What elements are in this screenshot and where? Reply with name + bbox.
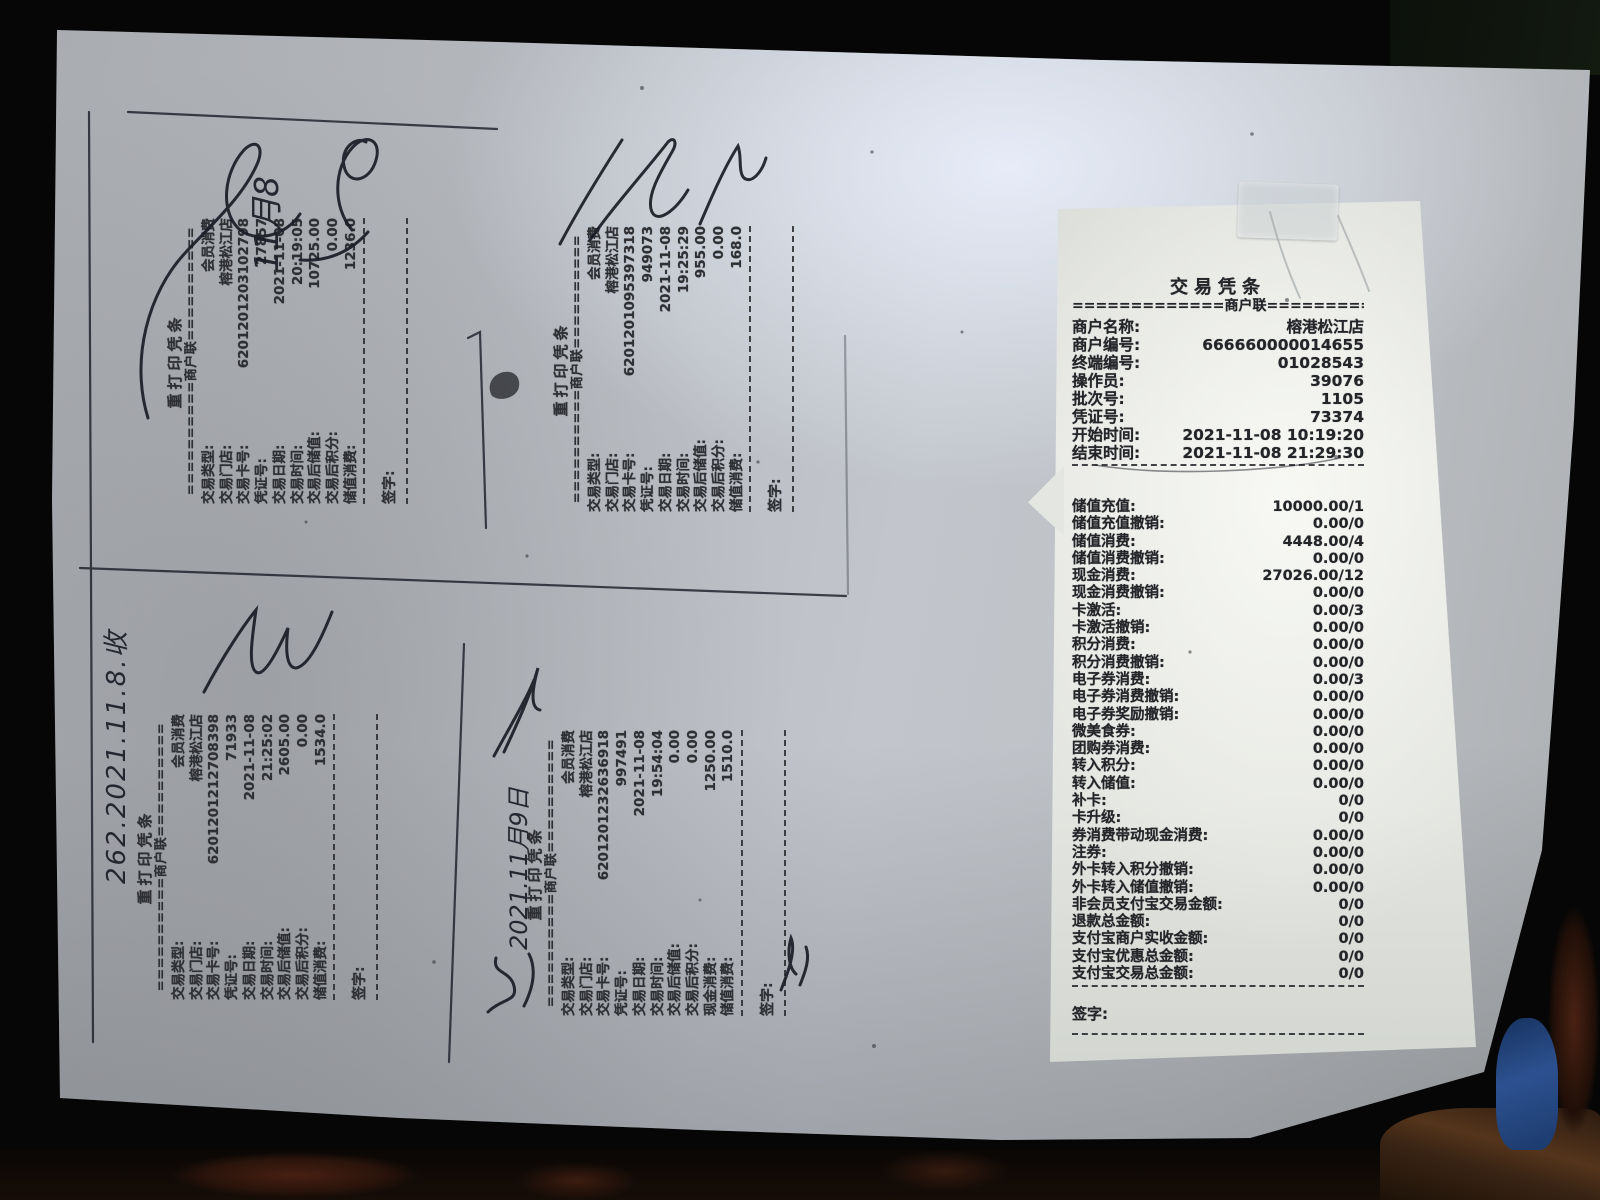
handwritten-note: 262.2021.11.8.收 bbox=[96, 630, 133, 884]
pen-line bbox=[80, 112, 848, 1062]
pen-line bbox=[1095, 458, 1340, 471]
dust-speck bbox=[305, 86, 1339, 1048]
handwritten-note: 11月8 bbox=[240, 176, 288, 272]
receipt-photo: 重打印凭条 ==========商户联========== 交易类型:会员消费交… bbox=[0, 0, 1600, 1200]
ink-smudge bbox=[490, 372, 520, 410]
handwritten-note: 2021.11月9日 bbox=[499, 787, 534, 950]
tape-crease bbox=[1270, 212, 1369, 298]
